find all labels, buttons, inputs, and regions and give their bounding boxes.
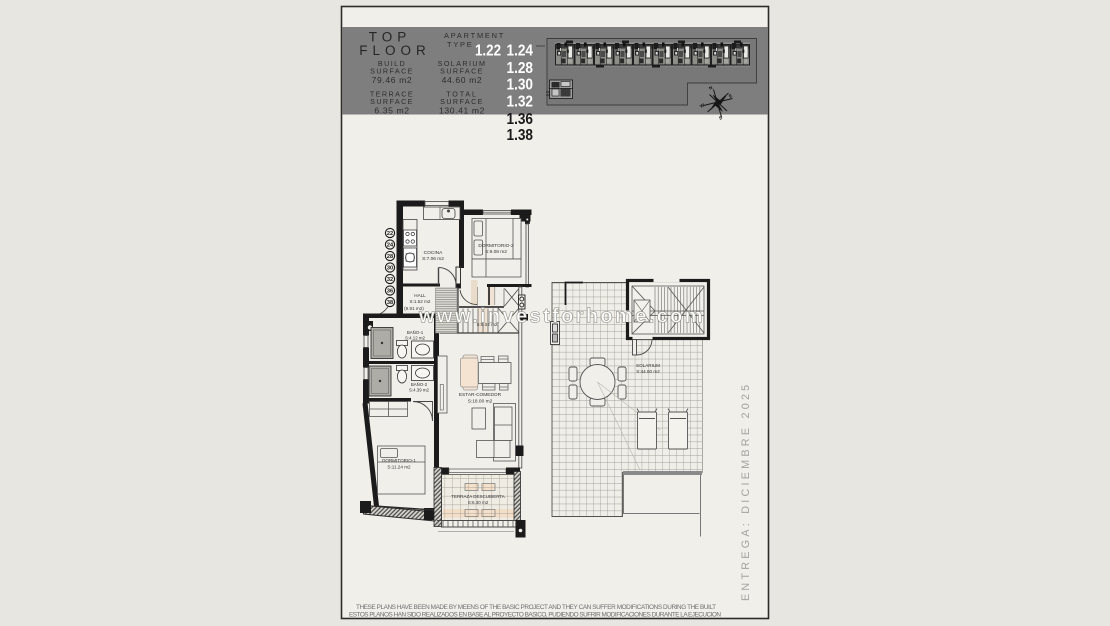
svg-text:SOLARIUM: SOLARIUM (636, 363, 660, 368)
svg-text:S:9.08 m2: S:9.08 m2 (485, 249, 507, 255)
svg-text:S:4.39 m2: S:4.39 m2 (409, 388, 430, 393)
svg-text:ESTOS PLANOS HAN SIDO REALIZAD: ESTOS PLANOS HAN SIDO REALIZADOS EN BASE… (349, 612, 721, 619)
svg-text:BAÑO-2: BAÑO-2 (411, 382, 428, 387)
svg-text:ESTAR-COMEDOR: ESTAR-COMEDOR (459, 392, 502, 398)
svg-text:38: 38 (387, 300, 393, 306)
svg-text:30: 30 (387, 266, 393, 272)
svg-text:32: 32 (387, 277, 393, 283)
svg-text:28: 28 (387, 254, 393, 260)
svg-text:S:44.60 m2: S:44.60 m2 (636, 369, 660, 374)
svg-text:DORMITORIO-1: DORMITORIO-1 (382, 458, 416, 463)
svg-text:HALL: HALL (414, 293, 426, 298)
svg-text:1.28: 1.28 (507, 60, 534, 77)
svg-text:S:11.24 m2: S:11.24 m2 (387, 465, 411, 470)
svg-text:S:1.52 m2: S:1.52 m2 (410, 299, 431, 304)
svg-text:24: 24 (387, 243, 394, 249)
svg-text:79.46 m2: 79.46 m2 (372, 75, 413, 85)
svg-text:S:4.12 m2: S:4.12 m2 (405, 336, 426, 341)
svg-text:36: 36 (387, 289, 393, 295)
svg-text:1.32: 1.32 (507, 94, 534, 111)
svg-text:TERRAZA DESCUBIERTA: TERRAZA DESCUBIERTA (451, 494, 505, 499)
svg-text:22: 22 (387, 231, 393, 237)
svg-text:S:18.00 m2: S:18.00 m2 (468, 399, 493, 405)
svg-text:S:7.06 m2: S:7.06 m2 (422, 256, 444, 262)
svg-text:1.22: 1.22 (475, 43, 501, 60)
svg-text:ENTREGA: DICIEMBRE 2025: ENTREGA: DICIEMBRE 2025 (740, 383, 752, 601)
svg-text:FLOOR: FLOOR (359, 43, 431, 58)
svg-text:130.41 m2: 130.41 m2 (439, 106, 485, 116)
svg-text:1.30: 1.30 (507, 77, 534, 94)
svg-text:BAÑO-1: BAÑO-1 (407, 330, 424, 335)
svg-text:DORMITORIO-2: DORMITORIO-2 (478, 243, 514, 249)
svg-text:S:6.30 m2: S:6.30 m2 (468, 500, 489, 505)
svg-text:APARTMENT: APARTMENT (444, 31, 505, 40)
svg-text:1.36: 1.36 (507, 111, 534, 128)
svg-text:www.investforhome.com: www.investforhome.com (418, 306, 703, 328)
svg-text:COCINA: COCINA (424, 250, 443, 256)
svg-text:1.38: 1.38 (507, 127, 534, 144)
svg-text:1.24: 1.24 (507, 43, 534, 60)
svg-text:6.35 m2: 6.35 m2 (374, 106, 409, 116)
svg-text:TYPE: TYPE (447, 40, 474, 49)
svg-text:THESE PLANS HAVE BEEN MADE BY: THESE PLANS HAVE BEEN MADE BY MEENS OF T… (356, 604, 716, 611)
svg-text:44.60 m2: 44.60 m2 (442, 75, 483, 85)
